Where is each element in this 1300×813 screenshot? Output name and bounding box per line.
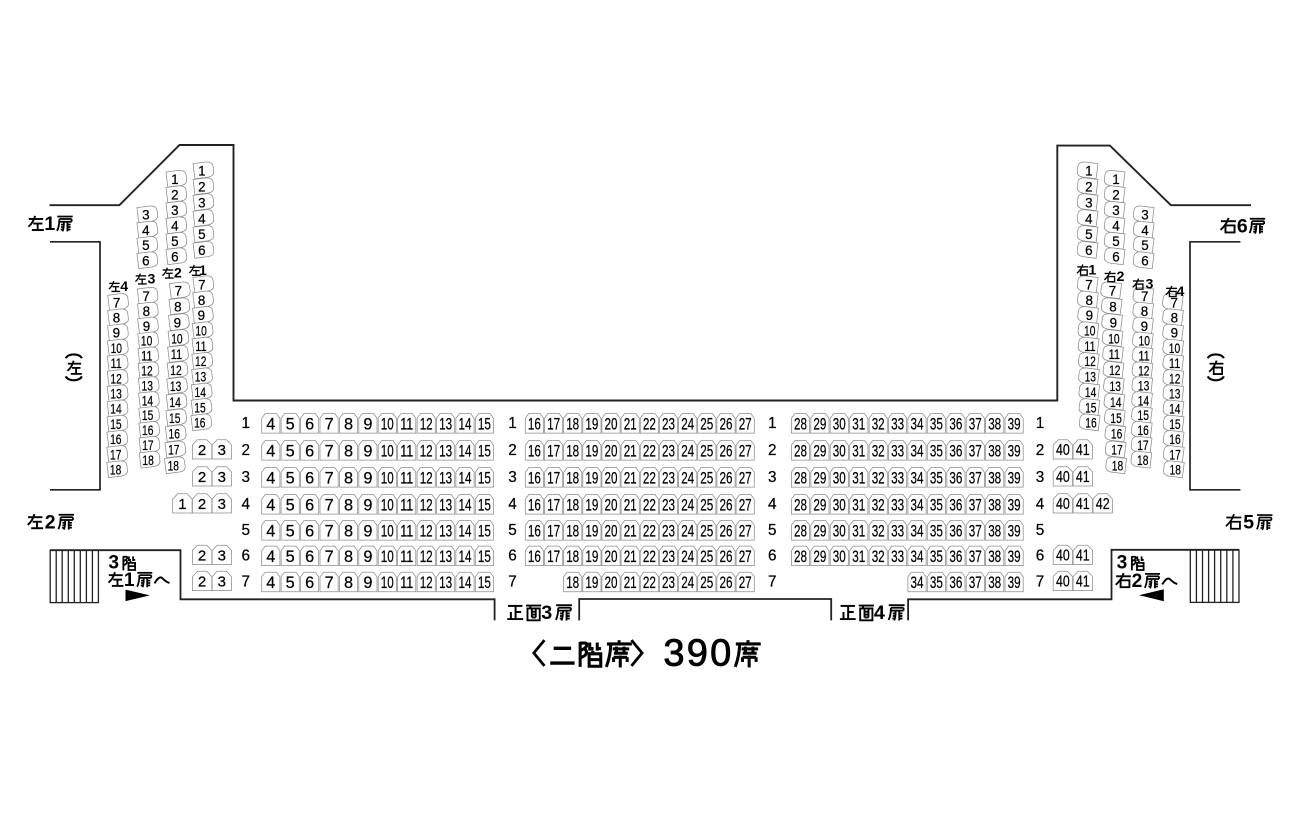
svg-text:38: 38 — [988, 548, 1001, 566]
svg-text:11: 11 — [400, 497, 413, 515]
svg-text:16: 16 — [528, 416, 541, 434]
svg-text:23: 23 — [662, 416, 675, 434]
svg-text:4: 4 — [1176, 284, 1184, 300]
svg-text:7: 7 — [325, 497, 334, 515]
svg-text:13: 13 — [1138, 378, 1149, 393]
svg-text:16: 16 — [528, 523, 541, 541]
svg-text:17: 17 — [142, 438, 153, 453]
svg-text:1: 1 — [178, 496, 186, 513]
svg-text:27: 27 — [739, 548, 752, 566]
svg-text:6: 6 — [1085, 243, 1092, 258]
svg-text:39: 39 — [1008, 497, 1021, 515]
svg-text:38: 38 — [988, 523, 1001, 541]
svg-text:2: 2 — [1132, 571, 1143, 592]
svg-text:16: 16 — [1085, 416, 1096, 431]
svg-text:5: 5 — [1141, 238, 1148, 253]
svg-text:14: 14 — [459, 574, 472, 592]
svg-text:34: 34 — [911, 523, 924, 541]
svg-text:11: 11 — [171, 347, 182, 362]
svg-text:38: 38 — [988, 416, 1001, 434]
svg-text:18: 18 — [566, 523, 579, 541]
svg-text:19: 19 — [585, 548, 598, 566]
svg-text:2: 2 — [198, 547, 206, 564]
svg-text:14: 14 — [1169, 402, 1181, 417]
svg-text:24: 24 — [681, 548, 694, 566]
svg-text:5: 5 — [286, 574, 295, 592]
svg-text:6: 6 — [305, 574, 314, 592]
svg-text:4: 4 — [120, 279, 128, 295]
svg-text:13: 13 — [142, 378, 153, 393]
svg-text:1: 1 — [1036, 415, 1045, 432]
svg-text:6: 6 — [305, 497, 314, 515]
svg-text:20: 20 — [605, 443, 618, 461]
svg-text:25: 25 — [700, 574, 713, 592]
svg-text:9: 9 — [1171, 326, 1178, 341]
svg-text:14: 14 — [1085, 385, 1097, 400]
svg-text:33: 33 — [891, 470, 904, 488]
svg-text:4: 4 — [768, 496, 777, 513]
svg-text:2: 2 — [45, 511, 56, 533]
svg-text:26: 26 — [720, 574, 733, 592]
svg-text:8: 8 — [344, 416, 353, 434]
svg-text:34: 34 — [911, 497, 924, 515]
svg-text:36: 36 — [949, 470, 962, 488]
svg-text:20: 20 — [605, 470, 618, 488]
svg-text:17: 17 — [1169, 447, 1180, 462]
svg-text:7: 7 — [1109, 284, 1116, 299]
svg-text:8: 8 — [344, 497, 353, 515]
svg-text:16: 16 — [169, 427, 180, 442]
svg-text:16: 16 — [528, 497, 541, 515]
svg-text:31: 31 — [852, 548, 865, 566]
svg-text:5: 5 — [1243, 512, 1254, 534]
svg-text:8: 8 — [113, 311, 120, 326]
svg-text:41: 41 — [1076, 442, 1090, 459]
svg-text:14: 14 — [110, 402, 122, 417]
svg-text:5: 5 — [286, 470, 295, 488]
svg-text:32: 32 — [872, 497, 885, 515]
svg-text:3: 3 — [171, 203, 178, 218]
svg-text:2: 2 — [242, 442, 251, 459]
svg-text:15: 15 — [1169, 417, 1180, 432]
svg-text:12: 12 — [1084, 354, 1095, 369]
svg-text:33: 33 — [891, 523, 904, 541]
svg-text:12: 12 — [420, 523, 433, 541]
svg-text:13: 13 — [170, 379, 181, 394]
svg-text:31: 31 — [852, 443, 865, 461]
svg-text:15: 15 — [1085, 400, 1096, 415]
svg-text:3: 3 — [108, 552, 119, 573]
svg-text:1: 1 — [171, 172, 178, 187]
svg-text:12: 12 — [1169, 371, 1180, 386]
svg-text:18: 18 — [566, 574, 579, 592]
svg-text:22: 22 — [643, 470, 656, 488]
svg-text:8: 8 — [1141, 304, 1148, 319]
svg-text:30: 30 — [833, 523, 846, 541]
svg-text:11: 11 — [400, 548, 413, 566]
svg-text:6: 6 — [171, 250, 178, 265]
svg-text:30: 30 — [833, 443, 846, 461]
svg-text:12: 12 — [420, 470, 433, 488]
svg-text:9: 9 — [113, 326, 120, 341]
svg-text:15: 15 — [478, 548, 491, 566]
svg-text:28: 28 — [794, 548, 807, 566]
svg-text:11: 11 — [1169, 356, 1180, 371]
svg-text:5: 5 — [142, 238, 149, 253]
svg-text:16: 16 — [110, 432, 121, 447]
svg-text:19: 19 — [585, 416, 598, 434]
svg-text:7: 7 — [768, 574, 777, 591]
svg-text:2: 2 — [768, 442, 777, 459]
svg-text:11: 11 — [111, 356, 122, 371]
svg-text:24: 24 — [681, 443, 694, 461]
svg-text:3: 3 — [218, 547, 226, 564]
svg-text:5: 5 — [198, 227, 205, 242]
svg-text:21: 21 — [624, 574, 637, 592]
svg-text:9: 9 — [363, 443, 372, 461]
svg-text:4: 4 — [266, 574, 275, 592]
svg-text:18: 18 — [566, 548, 579, 566]
svg-text:33: 33 — [891, 497, 904, 515]
svg-text:5: 5 — [242, 522, 251, 539]
svg-text:14: 14 — [459, 497, 472, 515]
svg-text:26: 26 — [720, 470, 733, 488]
svg-text:7: 7 — [325, 548, 334, 566]
svg-text:29: 29 — [813, 548, 826, 566]
svg-text:39: 39 — [1008, 416, 1021, 434]
svg-text:10: 10 — [381, 416, 394, 434]
svg-text:1: 1 — [242, 415, 251, 432]
svg-text:3: 3 — [142, 208, 149, 223]
svg-text:6: 6 — [198, 243, 205, 258]
svg-text:12: 12 — [110, 371, 121, 386]
svg-text:38: 38 — [988, 574, 1001, 592]
svg-text:3: 3 — [1036, 469, 1045, 486]
svg-text:23: 23 — [662, 548, 675, 566]
svg-text:7: 7 — [198, 278, 205, 293]
svg-text:9: 9 — [1110, 315, 1117, 330]
svg-text:5: 5 — [286, 443, 295, 461]
svg-text:21: 21 — [624, 443, 637, 461]
svg-text:8: 8 — [198, 293, 205, 308]
svg-text:8: 8 — [344, 574, 353, 592]
svg-text:9: 9 — [1086, 308, 1093, 323]
svg-text:35: 35 — [930, 497, 943, 515]
svg-text:40: 40 — [1056, 496, 1070, 513]
svg-text:11: 11 — [1138, 349, 1149, 364]
svg-text:0: 0 — [710, 632, 731, 674]
svg-text:20: 20 — [605, 548, 618, 566]
svg-text:6: 6 — [305, 523, 314, 541]
svg-text:11: 11 — [400, 574, 413, 592]
svg-text:3: 3 — [1141, 208, 1148, 223]
svg-text:8: 8 — [1171, 311, 1178, 326]
svg-text:4: 4 — [171, 219, 179, 234]
svg-text:2: 2 — [198, 469, 206, 486]
svg-text:41: 41 — [1076, 496, 1090, 513]
svg-text:2: 2 — [174, 266, 182, 282]
svg-text:25: 25 — [700, 548, 713, 566]
svg-text:17: 17 — [547, 523, 560, 541]
svg-text:37: 37 — [969, 416, 982, 434]
svg-text:9: 9 — [1141, 319, 1148, 334]
svg-text:4: 4 — [1085, 211, 1093, 226]
svg-text:19: 19 — [585, 523, 598, 541]
svg-text:13: 13 — [439, 523, 452, 541]
svg-text:1: 1 — [198, 164, 205, 179]
svg-text:5: 5 — [286, 497, 295, 515]
svg-text:18: 18 — [142, 453, 153, 468]
svg-text:23: 23 — [662, 470, 675, 488]
svg-text:10: 10 — [141, 334, 152, 349]
svg-text:22: 22 — [643, 574, 656, 592]
svg-text:33: 33 — [891, 443, 904, 461]
svg-text:20: 20 — [605, 523, 618, 541]
svg-text:12: 12 — [420, 497, 433, 515]
svg-text:2: 2 — [198, 442, 206, 459]
svg-text:24: 24 — [681, 574, 694, 592]
svg-text:32: 32 — [872, 548, 885, 566]
svg-text:17: 17 — [110, 447, 121, 462]
svg-text:37: 37 — [969, 443, 982, 461]
svg-text:7: 7 — [1036, 574, 1045, 591]
svg-text:32: 32 — [872, 416, 885, 434]
svg-text:13: 13 — [1085, 370, 1096, 385]
svg-text:1: 1 — [508, 415, 517, 432]
svg-text:34: 34 — [911, 470, 924, 488]
svg-text:33: 33 — [891, 548, 904, 566]
svg-text:10: 10 — [195, 324, 206, 339]
svg-text:1: 1 — [124, 570, 135, 591]
svg-text:1: 1 — [768, 415, 777, 432]
svg-text:31: 31 — [852, 523, 865, 541]
svg-text:18: 18 — [1170, 463, 1181, 478]
svg-text:5: 5 — [768, 522, 777, 539]
svg-text:4: 4 — [266, 416, 275, 434]
svg-text:21: 21 — [624, 470, 637, 488]
svg-text:4: 4 — [198, 211, 206, 226]
svg-text:15: 15 — [478, 443, 491, 461]
svg-text:14: 14 — [459, 523, 472, 541]
svg-text:24: 24 — [681, 497, 694, 515]
svg-text:25: 25 — [700, 470, 713, 488]
svg-text:9: 9 — [363, 574, 372, 592]
svg-text:39: 39 — [1008, 523, 1021, 541]
svg-text:37: 37 — [969, 470, 982, 488]
svg-text:3: 3 — [1117, 552, 1128, 573]
svg-text:10: 10 — [381, 470, 394, 488]
svg-text:4: 4 — [266, 443, 275, 461]
svg-text:12: 12 — [420, 416, 433, 434]
svg-text:11: 11 — [141, 349, 152, 364]
svg-text:39: 39 — [1008, 574, 1021, 592]
svg-text:17: 17 — [547, 470, 560, 488]
svg-text:2: 2 — [1036, 442, 1045, 459]
svg-text:25: 25 — [700, 497, 713, 515]
svg-text:39: 39 — [1008, 470, 1021, 488]
svg-text:37: 37 — [969, 497, 982, 515]
svg-text:6: 6 — [305, 470, 314, 488]
svg-text:12: 12 — [420, 548, 433, 566]
svg-text:5: 5 — [286, 548, 295, 566]
svg-text:26: 26 — [720, 523, 733, 541]
svg-text:27: 27 — [739, 443, 752, 461]
svg-text:9: 9 — [363, 497, 372, 515]
svg-text:3: 3 — [218, 574, 226, 591]
svg-text:12: 12 — [420, 574, 433, 592]
svg-text:4: 4 — [1036, 496, 1045, 513]
svg-text:3: 3 — [198, 195, 205, 210]
svg-text:25: 25 — [700, 416, 713, 434]
svg-text:30: 30 — [833, 497, 846, 515]
svg-text:2: 2 — [1085, 180, 1092, 195]
svg-text:10: 10 — [381, 548, 394, 566]
svg-text:26: 26 — [720, 548, 733, 566]
svg-text:3: 3 — [663, 632, 684, 674]
svg-text:2: 2 — [508, 442, 517, 459]
svg-text:29: 29 — [813, 523, 826, 541]
svg-text:30: 30 — [833, 416, 846, 434]
svg-text:3: 3 — [242, 469, 251, 486]
svg-text:11: 11 — [400, 443, 413, 461]
svg-text:5: 5 — [1036, 522, 1045, 539]
svg-text:31: 31 — [852, 416, 865, 434]
svg-text:36: 36 — [949, 523, 962, 541]
svg-text:4: 4 — [508, 496, 517, 513]
svg-text:1: 1 — [1085, 164, 1092, 179]
svg-text:4: 4 — [242, 496, 251, 513]
svg-text:36: 36 — [949, 497, 962, 515]
svg-text:14: 14 — [1138, 393, 1150, 408]
svg-text:39: 39 — [1008, 548, 1021, 566]
svg-text:23: 23 — [662, 574, 675, 592]
svg-text:40: 40 — [1056, 469, 1070, 486]
svg-text:31: 31 — [852, 470, 865, 488]
svg-text:9: 9 — [687, 632, 708, 674]
svg-text:27: 27 — [739, 523, 752, 541]
svg-text:3: 3 — [508, 469, 517, 486]
svg-text:11: 11 — [400, 523, 413, 541]
svg-text:40: 40 — [1056, 574, 1070, 591]
svg-text:18: 18 — [1137, 453, 1148, 468]
svg-text:6: 6 — [142, 254, 149, 269]
svg-text:6: 6 — [305, 416, 314, 434]
svg-text:9: 9 — [363, 416, 372, 434]
svg-text:8: 8 — [143, 304, 150, 319]
svg-text:24: 24 — [681, 523, 694, 541]
svg-text:7: 7 — [1085, 278, 1092, 293]
svg-text:11: 11 — [195, 339, 206, 354]
svg-text:10: 10 — [1108, 331, 1119, 346]
svg-text:18: 18 — [566, 443, 579, 461]
svg-text:11: 11 — [1109, 347, 1120, 362]
svg-text:4: 4 — [266, 497, 275, 515]
svg-text:10: 10 — [381, 523, 394, 541]
svg-text:18: 18 — [168, 459, 179, 474]
svg-text:15: 15 — [110, 417, 121, 432]
svg-text:5: 5 — [286, 523, 295, 541]
svg-text:18: 18 — [566, 416, 579, 434]
svg-text:12: 12 — [1109, 363, 1120, 378]
svg-text:7: 7 — [325, 443, 334, 461]
svg-text:21: 21 — [624, 416, 637, 434]
svg-text:35: 35 — [930, 416, 943, 434]
svg-text:9: 9 — [363, 548, 372, 566]
svg-text:39: 39 — [1008, 443, 1021, 461]
svg-text:1: 1 — [1112, 172, 1119, 187]
svg-text:6: 6 — [1237, 215, 1248, 237]
svg-text:37: 37 — [969, 523, 982, 541]
svg-text:3: 3 — [541, 602, 552, 624]
svg-text:18: 18 — [1112, 459, 1123, 474]
svg-text:22: 22 — [643, 416, 656, 434]
svg-text:40: 40 — [1056, 442, 1070, 459]
svg-text:15: 15 — [1138, 408, 1149, 423]
svg-text:12: 12 — [420, 443, 433, 461]
svg-text:14: 14 — [459, 443, 472, 461]
svg-text:25: 25 — [700, 443, 713, 461]
svg-text:10: 10 — [1139, 334, 1150, 349]
svg-text:1: 1 — [199, 263, 207, 279]
svg-text:35: 35 — [930, 523, 943, 541]
svg-text:16: 16 — [528, 548, 541, 566]
svg-text:38: 38 — [988, 443, 1001, 461]
svg-text:34: 34 — [911, 443, 924, 461]
svg-text:7: 7 — [325, 416, 334, 434]
svg-text:2: 2 — [198, 574, 206, 591]
svg-text:28: 28 — [794, 416, 807, 434]
svg-text:13: 13 — [195, 370, 206, 385]
svg-text:7: 7 — [113, 295, 120, 310]
svg-text:10: 10 — [381, 574, 394, 592]
svg-text:14: 14 — [195, 385, 207, 400]
svg-text:27: 27 — [739, 497, 752, 515]
svg-text:7: 7 — [242, 574, 251, 591]
svg-text:37: 37 — [969, 574, 982, 592]
svg-text:19: 19 — [585, 443, 598, 461]
svg-text:3: 3 — [768, 469, 777, 486]
svg-text:14: 14 — [459, 470, 472, 488]
svg-text:16: 16 — [528, 443, 541, 461]
svg-text:3: 3 — [1085, 195, 1092, 210]
svg-text:9: 9 — [363, 470, 372, 488]
svg-text:3: 3 — [218, 496, 226, 513]
svg-text:21: 21 — [624, 497, 637, 515]
svg-text:2: 2 — [198, 180, 205, 195]
svg-text:3: 3 — [148, 271, 156, 287]
svg-text:3: 3 — [218, 469, 226, 486]
svg-text:4: 4 — [266, 470, 275, 488]
svg-text:27: 27 — [739, 574, 752, 592]
svg-text:6: 6 — [1036, 548, 1045, 565]
svg-text:16: 16 — [1111, 427, 1122, 442]
svg-text:8: 8 — [1085, 293, 1092, 308]
svg-text:28: 28 — [794, 470, 807, 488]
svg-text:35: 35 — [930, 548, 943, 566]
svg-text:10: 10 — [381, 497, 394, 515]
svg-text:41: 41 — [1076, 469, 1090, 486]
svg-text:14: 14 — [1110, 395, 1122, 410]
svg-text:7: 7 — [175, 284, 182, 299]
svg-text:34: 34 — [911, 548, 924, 566]
svg-text:10: 10 — [1169, 341, 1180, 356]
svg-text:37: 37 — [969, 548, 982, 566]
svg-text:35: 35 — [930, 574, 943, 592]
svg-text:42: 42 — [1096, 496, 1110, 513]
svg-text:1: 1 — [44, 213, 55, 235]
svg-text:33: 33 — [891, 416, 904, 434]
svg-text:17: 17 — [1111, 443, 1122, 458]
